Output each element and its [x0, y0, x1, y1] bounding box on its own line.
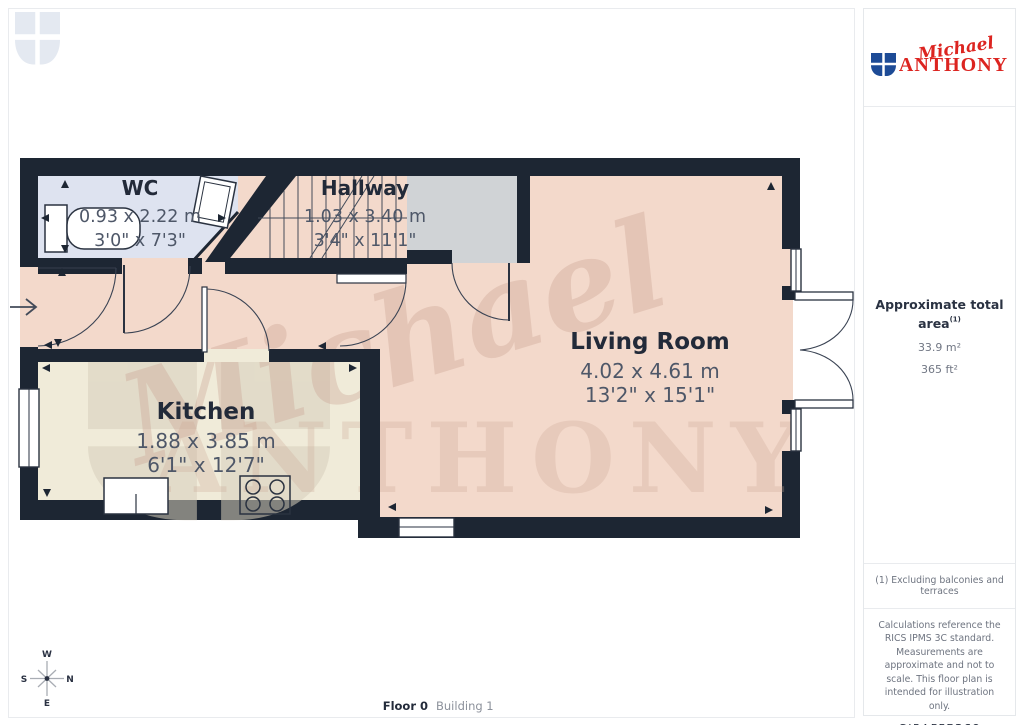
kitchen-dim-metric: 1.88 x 3.85 m — [136, 429, 275, 453]
giraffe360-brand: GIRAFFE360 — [875, 721, 1004, 725]
french-door-leaf-bottom — [795, 400, 853, 408]
kitchen-door-opening — [204, 349, 269, 362]
living-room-dim-metric: 4.02 x 4.61 m — [580, 359, 719, 383]
area-title: Approximate total area — [875, 297, 1003, 331]
french-door-swing-bottom — [800, 350, 853, 400]
stairs-door-leaf — [337, 274, 406, 283]
wc-name: WC — [122, 176, 159, 200]
wc-dim-imperial: 3'0" x 7'3" — [94, 231, 186, 251]
hallway-name: Hallway — [321, 176, 409, 200]
kitchen-name: Kitchen — [157, 399, 256, 425]
info-sidebar: Michael ANTHONY Approximate total area(1… — [863, 8, 1016, 716]
kitchen-door-leaf — [202, 287, 207, 352]
living-room-name: Living Room — [570, 329, 730, 355]
shield-logo-icon — [871, 53, 896, 76]
area-title-superscript: (1) — [950, 316, 961, 324]
disclaimer-note: Calculations reference the RICS IPMS 3C … — [864, 608, 1015, 715]
living-room-dim-imperial: 13'2" x 15'1" — [585, 383, 715, 407]
area-metric: 33.9 m² — [918, 341, 961, 354]
disclaimer-text: Calculations reference the RICS IPMS 3C … — [875, 619, 1004, 713]
building-label: Building 1 — [436, 699, 494, 713]
hallway-dim-imperial: 3'4" x 11'1" — [314, 231, 417, 251]
compass-right: N — [66, 675, 74, 685]
total-area-panel: Approximate total area(1) 33.9 m² 365 ft… — [864, 107, 1015, 563]
footer-label: Floor 0 Building 1 — [383, 699, 494, 713]
kitchen-dim-imperial: 6'1" x 12'7" — [147, 453, 265, 477]
french-door-leaf-top — [795, 292, 853, 300]
floorplan-page: Michael ANTHONY — [0, 0, 1024, 725]
floorplan-svg: Michael ANTHONY — [0, 0, 860, 725]
compass-top: W — [42, 650, 52, 660]
french-door-swing-top — [800, 300, 853, 350]
wc-dim-metric: 0.93 x 2.22 m — [79, 207, 201, 227]
compass-bottom: E — [44, 699, 50, 709]
area-imperial: 365 ft² — [921, 363, 958, 376]
shield-watermark-icon-topleft — [15, 12, 60, 64]
exclusions-note: (1) Excluding balconies and terraces — [864, 563, 1015, 608]
agency-logo: Michael ANTHONY — [864, 9, 1015, 107]
toilet-cistern — [45, 205, 67, 252]
compass-rose-icon: W N E S — [21, 650, 74, 709]
floor-label: Floor 0 — [383, 699, 428, 713]
compass-left: S — [21, 675, 27, 685]
hallway-dim-metric: 1.03 x 3.40 m — [304, 207, 426, 227]
wc-door-opening — [122, 258, 188, 274]
